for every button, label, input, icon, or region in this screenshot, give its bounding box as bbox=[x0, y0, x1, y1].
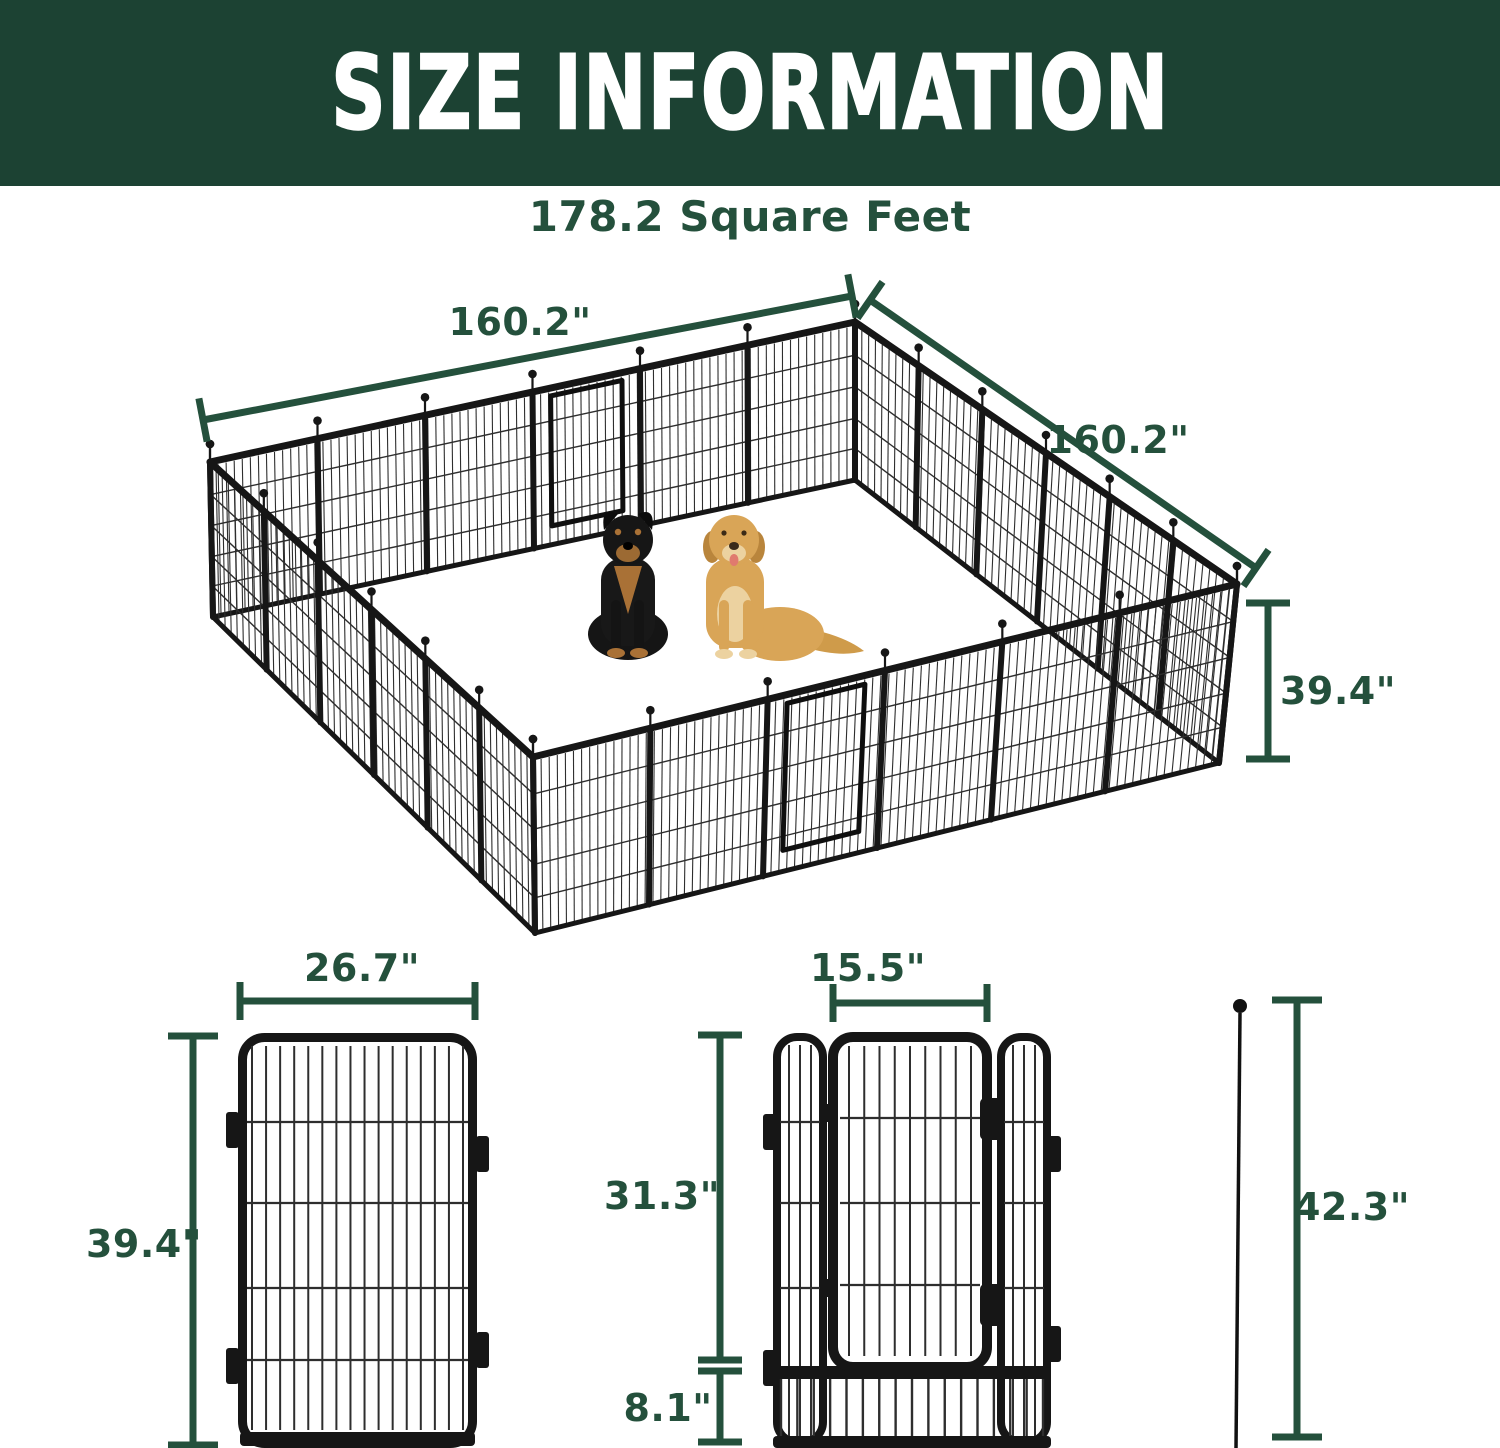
size-information-page: SIZE INFORMATION 178.2 Square Feet bbox=[0, 0, 1500, 1448]
door-height-label: 31.3" bbox=[604, 1174, 720, 1218]
pen-height-label: 39.4" bbox=[1280, 669, 1396, 713]
pen-illustration bbox=[206, 300, 1242, 933]
panel-height-label: 39.4" bbox=[86, 1222, 202, 1266]
door-width-label: 15.5" bbox=[810, 946, 926, 990]
pen-wall-back-left bbox=[206, 300, 860, 617]
page-title: SIZE INFORMATION bbox=[331, 34, 1169, 153]
pen-width-left-label: 160.2" bbox=[449, 300, 592, 344]
stake-height-label: 42.3" bbox=[1294, 1185, 1410, 1229]
golden-retriever-illustration bbox=[703, 515, 864, 661]
dogs-illustration bbox=[588, 512, 864, 661]
pen-wall-front-right bbox=[529, 562, 1242, 933]
single-panel-diagram bbox=[226, 1038, 489, 1447]
area-subtitle: 178.2 Square Feet bbox=[0, 192, 1500, 241]
door-panel-diagram bbox=[763, 1037, 1061, 1448]
rottweiler-illustration bbox=[588, 512, 668, 660]
door-bottom-label: 8.1" bbox=[623, 1386, 712, 1430]
header-banner: SIZE INFORMATION bbox=[0, 0, 1500, 186]
pen-wall-front-left bbox=[206, 440, 538, 933]
pen-width-right-label: 160.2" bbox=[1047, 418, 1190, 462]
ground-stake-illustration bbox=[1233, 999, 1247, 1448]
pen-wall-back-right bbox=[851, 300, 1242, 763]
panel-width-label: 26.7" bbox=[304, 946, 420, 990]
